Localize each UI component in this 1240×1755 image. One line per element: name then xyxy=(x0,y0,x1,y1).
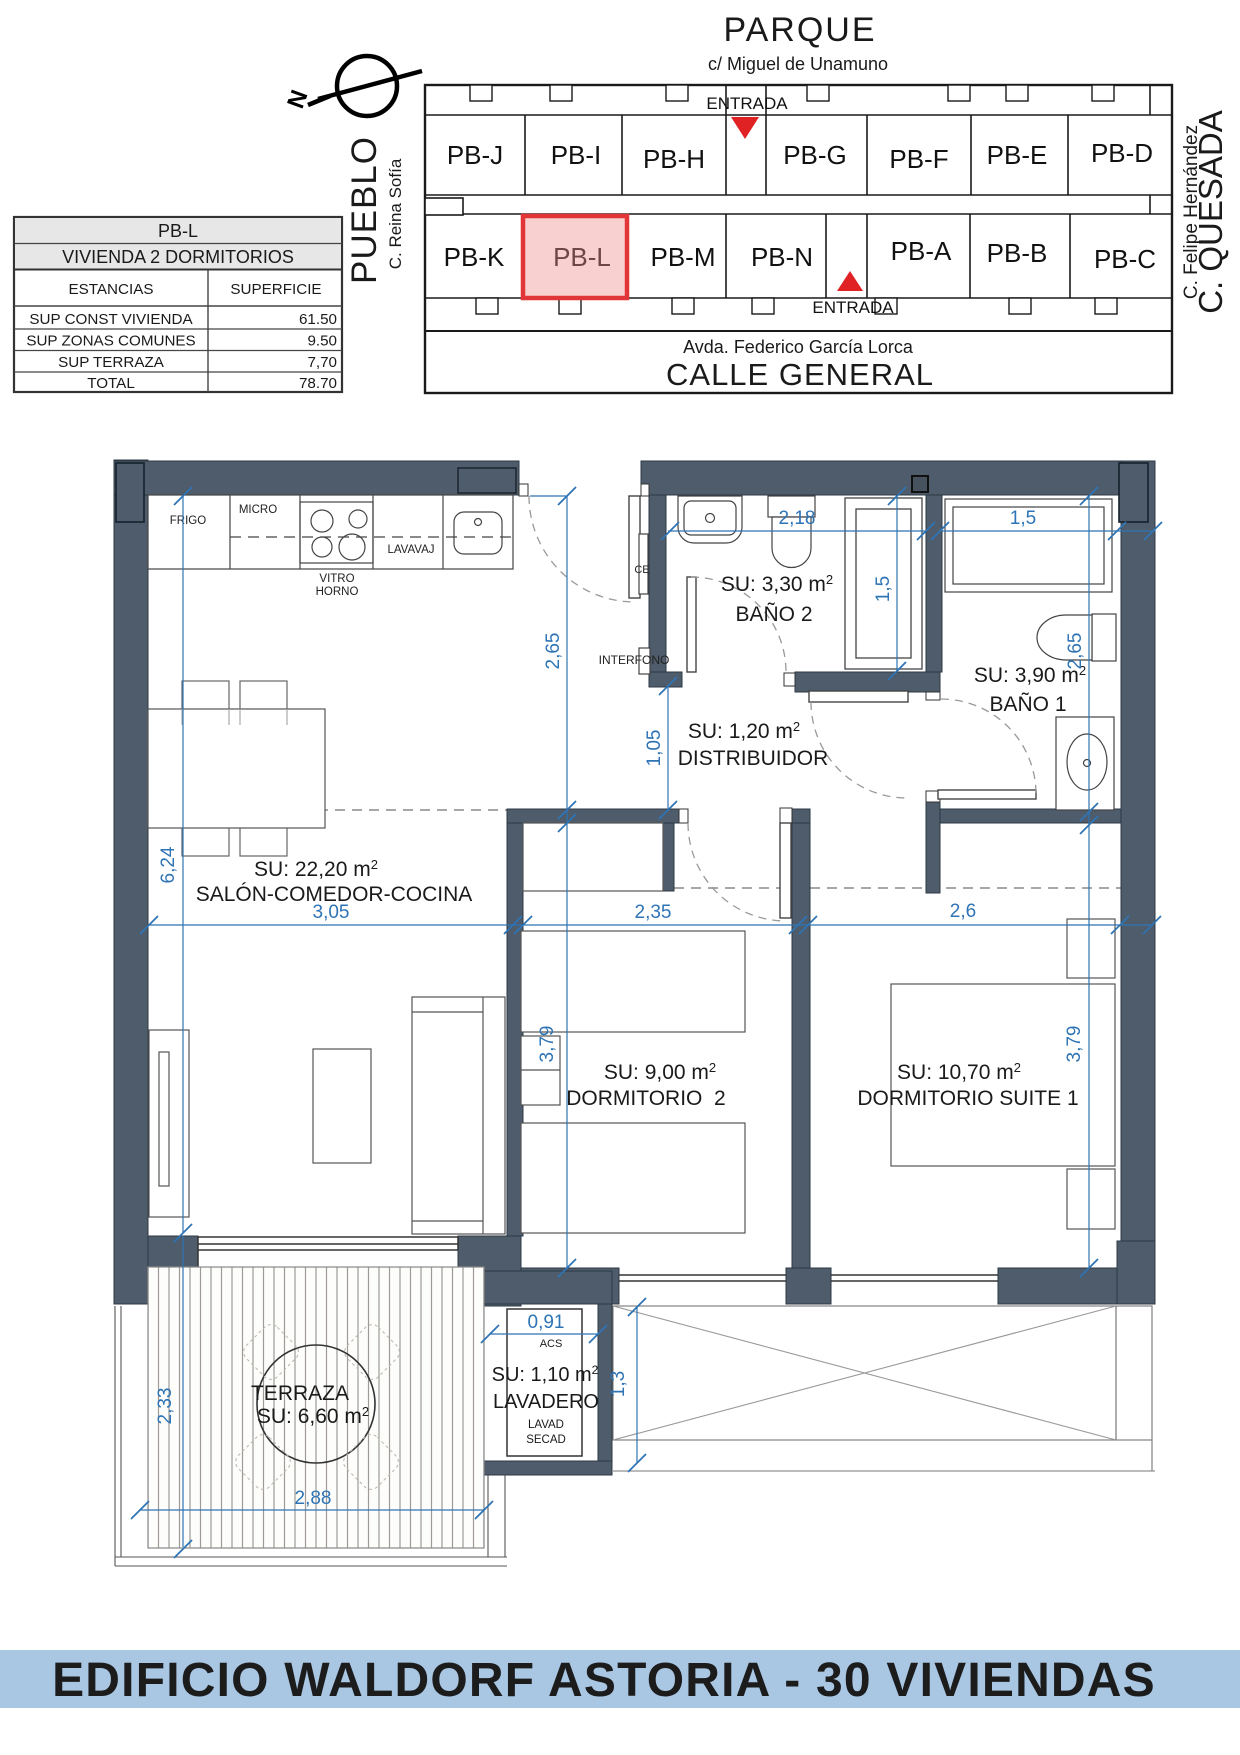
svg-text:9.50: 9.50 xyxy=(307,333,337,350)
svg-text:SU: 1,10 m2: SU: 1,10 m2 xyxy=(492,1363,599,1386)
svg-text:Avda. Federico García Lorca: Avda. Federico García Lorca xyxy=(683,337,914,357)
svg-text:DORMITORIO SUITE 1: DORMITORIO SUITE 1 xyxy=(857,1087,1078,1110)
svg-text:3,79: 3,79 xyxy=(537,1026,558,1063)
svg-text:LAVAD: LAVAD xyxy=(528,1419,564,1431)
svg-text:HORNO: HORNO xyxy=(316,586,359,598)
svg-text:2,88: 2,88 xyxy=(295,1488,332,1509)
svg-text:ACS: ACS xyxy=(540,1338,563,1350)
svg-text:PB-K: PB-K xyxy=(444,242,505,272)
svg-text:PB-F: PB-F xyxy=(889,144,948,174)
svg-text:PB-D: PB-D xyxy=(1091,138,1153,168)
svg-text:ENTRADA: ENTRADA xyxy=(812,298,894,317)
svg-text:PB-L: PB-L xyxy=(553,242,611,272)
svg-text:PARQUE: PARQUE xyxy=(723,11,876,49)
svg-text:EDIFICIO WALDORF ASTORIA - 30: EDIFICIO WALDORF ASTORIA - 30 VIVIENDAS xyxy=(52,1654,1156,1707)
svg-text:SU: 22,20 m2: SU: 22,20 m2 xyxy=(254,857,378,881)
svg-text:2,6: 2,6 xyxy=(950,901,976,922)
svg-text:c/ Miguel de Unamuno: c/ Miguel de Unamuno xyxy=(708,54,888,74)
svg-text:VIVIENDA 2 DORMITORIOS: VIVIENDA 2 DORMITORIOS xyxy=(62,247,294,267)
svg-text:PB-N: PB-N xyxy=(751,242,813,272)
svg-text:SUPERFICIE: SUPERFICIE xyxy=(230,281,321,298)
svg-text:DORMITORIO 2: DORMITORIO 2 xyxy=(566,1087,725,1110)
svg-text:MICRO: MICRO xyxy=(239,504,277,516)
svg-text:2,18: 2,18 xyxy=(779,508,816,529)
svg-text:1,05: 1,05 xyxy=(644,730,665,767)
svg-text:PB-L: PB-L xyxy=(158,221,198,241)
svg-text:SU: 3,30 m2: SU: 3,30 m2 xyxy=(721,572,833,596)
svg-text:2,65: 2,65 xyxy=(543,633,564,670)
svg-text:PB-M: PB-M xyxy=(651,242,716,272)
svg-text:SUP TERRAZA: SUP TERRAZA xyxy=(58,354,165,371)
svg-text:INTERFONO: INTERFONO xyxy=(599,653,670,667)
svg-text:VITRO: VITRO xyxy=(319,573,354,585)
svg-text:CE: CE xyxy=(634,564,649,576)
svg-text:1,3: 1,3 xyxy=(608,1371,629,1397)
svg-text:TOTAL: TOTAL xyxy=(87,375,135,392)
svg-text:PB-B: PB-B xyxy=(987,238,1048,268)
svg-text:0,91: 0,91 xyxy=(528,1312,565,1333)
svg-text:3,79: 3,79 xyxy=(1064,1026,1085,1063)
svg-text:ENTRADA: ENTRADA xyxy=(706,94,788,113)
svg-text:3,05: 3,05 xyxy=(313,902,350,923)
svg-text:PB-I: PB-I xyxy=(551,140,602,170)
svg-text:PB-G: PB-G xyxy=(783,140,847,170)
svg-text:61.50: 61.50 xyxy=(299,311,337,328)
svg-text:2,65: 2,65 xyxy=(1065,633,1086,670)
svg-text:ESTANCIAS: ESTANCIAS xyxy=(69,281,154,298)
svg-text:SUP ZONAS COMUNES: SUP ZONAS COMUNES xyxy=(26,333,195,350)
svg-text:PB-J: PB-J xyxy=(447,140,503,170)
svg-text:TERRAZA: TERRAZA xyxy=(251,1382,349,1405)
svg-text:SUP CONST VIVIENDA: SUP CONST VIVIENDA xyxy=(29,311,193,328)
svg-text:PB-H: PB-H xyxy=(643,144,705,174)
svg-text:2,35: 2,35 xyxy=(635,902,672,923)
svg-text:C. Reina Sofía: C. Reina Sofía xyxy=(386,158,405,269)
svg-text:78.70: 78.70 xyxy=(299,375,337,392)
svg-text:BAÑO 2: BAÑO 2 xyxy=(735,602,812,626)
svg-text:PB-C: PB-C xyxy=(1094,244,1156,274)
svg-text:2,33: 2,33 xyxy=(155,1388,176,1425)
svg-text:LAVAVAJ: LAVAVAJ xyxy=(387,544,434,556)
svg-text:PUEBLO: PUEBLO xyxy=(345,136,384,284)
svg-text:7,70: 7,70 xyxy=(307,354,337,371)
svg-text:SU: 10,70 m2: SU: 10,70 m2 xyxy=(897,1060,1021,1084)
svg-text:DISTRIBUIDOR: DISTRIBUIDOR xyxy=(678,747,829,770)
svg-text:PB-A: PB-A xyxy=(891,236,952,266)
svg-text:6,24: 6,24 xyxy=(158,846,179,883)
svg-text:SU: 9,00 m2: SU: 9,00 m2 xyxy=(604,1060,716,1084)
svg-text:1,5: 1,5 xyxy=(873,576,894,602)
svg-text:PB-E: PB-E xyxy=(987,140,1048,170)
svg-text:BAÑO 1: BAÑO 1 xyxy=(989,692,1066,716)
svg-text:1,5: 1,5 xyxy=(1010,508,1036,529)
svg-text:SU: 1,20 m2: SU: 1,20 m2 xyxy=(688,719,800,743)
svg-text:SU: 6,60 m2: SU: 6,60 m2 xyxy=(257,1404,369,1428)
svg-text:C. QUESADA: C. QUESADA xyxy=(1192,110,1229,314)
svg-text:N: N xyxy=(282,87,313,113)
svg-text:SECAD: SECAD xyxy=(526,1434,566,1446)
svg-text:FRIGO: FRIGO xyxy=(170,515,206,527)
svg-text:LAVADERO: LAVADERO xyxy=(493,1391,599,1413)
svg-text:CALLE GENERAL: CALLE GENERAL xyxy=(666,357,934,392)
